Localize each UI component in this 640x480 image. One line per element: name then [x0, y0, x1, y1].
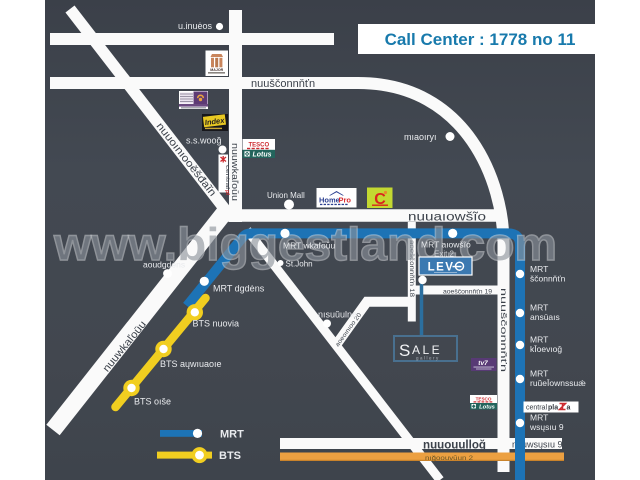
svg-text:BTS oıše: BTS oıše: [134, 397, 171, 407]
svg-text:kĪoevıoğ: kĪoevıoğ: [530, 344, 562, 354]
svg-text:nısuŭulne: nısuŭulne: [318, 310, 357, 320]
svg-text:aoeščonnňťn 19: aoeščonnňťn 19: [443, 289, 492, 296]
svg-text:nuuščonnňťn: nuuščonnňťn: [251, 78, 315, 90]
svg-text:Call Center : 1778 no 11: Call Center : 1778 no 11: [385, 30, 576, 49]
svg-text:tv7: tv7: [478, 360, 488, 367]
svg-text:Lotus: Lotus: [252, 152, 271, 159]
svg-text:pla: pla: [548, 405, 558, 412]
svg-text:Union Mall: Union Mall: [267, 191, 305, 200]
svg-text:BTS nuovia: BTS nuovia: [193, 319, 240, 329]
svg-text:TESCO: TESCO: [476, 397, 492, 402]
svg-text:St.John: St.John: [286, 260, 313, 269]
svg-text:Pro: Pro: [339, 196, 352, 205]
svg-text:TESCO: TESCO: [248, 143, 269, 149]
svg-text:pl: pl: [224, 190, 230, 195]
svg-text:nuuščonnňťn: nuuščonnňťn: [499, 288, 509, 372]
svg-text:S: S: [399, 341, 410, 360]
svg-text:MRT: MRT: [530, 264, 548, 274]
svg-text:Home: Home: [319, 196, 340, 205]
svg-text:wsųsıu 9: wsųsıu 9: [529, 422, 564, 432]
svg-text:nığoouvŭun 2: nığoouvŭun 2: [425, 455, 473, 462]
svg-text:BTS aųwıuaoıe: BTS aųwıuaoıe: [160, 359, 222, 369]
svg-text:a: a: [567, 405, 571, 412]
svg-text:MRT wkaľoūu: MRT wkaľoūu: [283, 241, 336, 251]
svg-text:MRT: MRT: [530, 413, 548, 423]
svg-text:LEV: LEV: [428, 262, 455, 274]
svg-text:MRT: MRT: [530, 335, 548, 345]
svg-text:MRT aıowšĩo: MRT aıowšĩo: [421, 240, 471, 250]
svg-text:ruŭeĪownssuǽ: ruŭeĪownssuǽ: [530, 378, 586, 388]
svg-text:s.s.wooğ: s.s.wooğ: [186, 136, 222, 146]
svg-text:MRT: MRT: [220, 429, 244, 441]
svg-text:nuuouulloğ: nuuouulloğ: [423, 439, 486, 451]
svg-text:u.inuėos: u.inuėos: [178, 21, 213, 31]
svg-text:ansūaıs: ansūaıs: [530, 312, 560, 322]
svg-text:central: central: [224, 165, 230, 189]
svg-text:aoudgdėns: aoudgdėns: [143, 260, 185, 270]
svg-text:MRT: MRT: [530, 369, 548, 379]
svg-text:Lotus: Lotus: [479, 405, 496, 411]
svg-text:MAJOR: MAJOR: [210, 68, 223, 72]
svg-text:MRT dgdėns: MRT dgdėns: [213, 284, 265, 294]
svg-text:central: central: [526, 405, 547, 412]
svg-text:mıaoıryı: mıaoıryı: [404, 132, 437, 142]
svg-text:gallery: gallery: [416, 356, 440, 361]
svg-text:MRT: MRT: [530, 303, 548, 313]
svg-text:BTS: BTS: [219, 450, 241, 462]
svg-text:ščonnňťn: ščonnňťn: [530, 274, 566, 284]
